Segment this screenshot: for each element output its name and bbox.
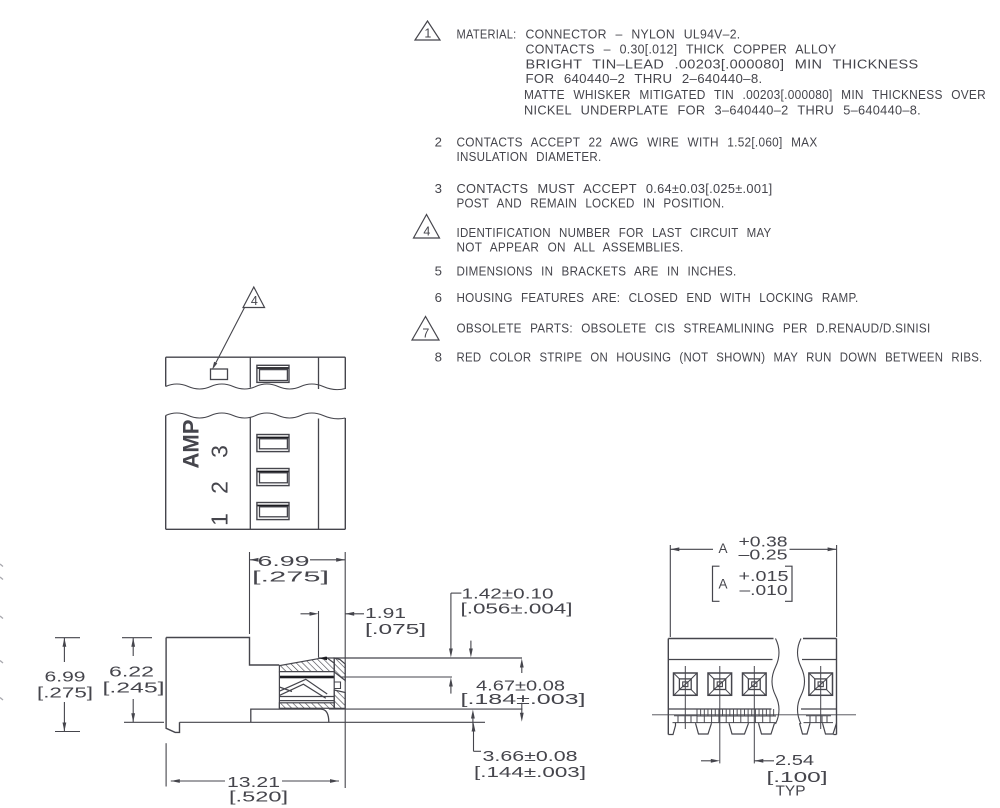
svg-text:[.184±.003]: [.184±.003] <box>461 691 586 708</box>
svg-text:[.144±.003]: [.144±.003] <box>474 764 586 781</box>
svg-text:3.66±0.08: 3.66±0.08 <box>483 748 578 765</box>
svg-text:6.99: 6.99 <box>45 669 86 686</box>
svg-text:OBSOLETE PARTS: OBSOLETE CIS S: OBSOLETE PARTS: OBSOLETE CIS STREAMLININ… <box>457 321 931 336</box>
svg-text:DIMENSIONS IN BRACKETS ARE IN: DIMENSIONS IN BRACKETS ARE IN INCHES. <box>457 263 737 278</box>
svg-text:CONNECTOR – NYLON UL94V–2.: CONNECTOR – NYLON UL94V–2. <box>526 27 741 42</box>
svg-text:CONTACTS MUST ACCEPT 0.64±0.03: CONTACTS MUST ACCEPT 0.64±0.03[.025±.001… <box>457 181 773 196</box>
svg-text:NOT APPEAR ON ALL ASSEMBLIES.: NOT APPEAR ON ALL ASSEMBLIES. <box>457 240 684 255</box>
svg-text:3: 3 <box>435 181 443 196</box>
svg-text:6: 6 <box>435 290 443 305</box>
svg-text:AMP: AMP <box>179 420 204 469</box>
svg-text:RED COLOR STRIPE ON HOUSING (N: RED COLOR STRIPE ON HOUSING (NOT SHOWN) … <box>457 350 983 365</box>
svg-text:6.22: 6.22 <box>109 663 154 680</box>
svg-text:1.91: 1.91 <box>365 605 406 622</box>
svg-text:[.520]: [.520] <box>229 789 288 806</box>
svg-text:6.99: 6.99 <box>258 553 310 570</box>
svg-text:2.54: 2.54 <box>775 752 814 769</box>
svg-text:INSULATION DIAMETER.: INSULATION DIAMETER. <box>457 149 602 164</box>
svg-text:FOR 640440–2 THRU 2–640440–8.: FOR 640440–2 THRU 2–640440–8. <box>526 71 763 86</box>
svg-text:[.275]: [.275] <box>252 569 329 586</box>
svg-text:8: 8 <box>435 350 443 365</box>
svg-text:NICKEL UNDERPLATE FOR 3–640440: NICKEL UNDERPLATE FOR 3–640440–2 THRU 5–… <box>524 103 921 118</box>
svg-text:MATERIAL:: MATERIAL: <box>457 27 517 42</box>
svg-text:2: 2 <box>207 481 233 494</box>
svg-text:A: A <box>718 541 727 556</box>
svg-text:IDENTIFICATION NUMBER FOR LAST: IDENTIFICATION NUMBER FOR LAST CIRCUIT M… <box>457 225 772 240</box>
svg-text:5: 5 <box>435 263 443 278</box>
svg-text:TYP: TYP <box>776 783 806 800</box>
svg-text:–.010: –.010 <box>740 582 788 599</box>
svg-text:MATTE WHISKER MITIGATED TIN .0: MATTE WHISKER MITIGATED TIN .00203[.0000… <box>524 87 986 102</box>
svg-text:CONTACTS – 0.30[.012] THICK CO: CONTACTS – 0.30[.012] THICK COPPER ALLOY <box>526 42 837 57</box>
svg-text:2: 2 <box>435 134 443 149</box>
svg-text:–0.25: –0.25 <box>739 547 788 564</box>
svg-text:7: 7 <box>422 327 429 341</box>
svg-text:4: 4 <box>251 294 258 308</box>
svg-text:POST AND REMAIN LOCKED IN POSI: POST AND REMAIN LOCKED IN POSITION. <box>457 196 725 211</box>
svg-text:1: 1 <box>207 513 233 526</box>
svg-text:CONTACTS ACCEPT 22 AWG WIRE WI: CONTACTS ACCEPT 22 AWG WIRE WITH 1.52[.0… <box>457 134 818 149</box>
svg-text:[.056±.004]: [.056±.004] <box>461 600 573 617</box>
svg-text:HOUSING FEATURES ARE: CLOSED E: HOUSING FEATURES ARE: CLOSED END WITH LO… <box>457 290 859 305</box>
svg-text:A: A <box>718 576 727 591</box>
svg-text:BRIGHT TIN–LEAD .00203[.000080: BRIGHT TIN–LEAD .00203[.000080] MIN THIC… <box>526 56 919 71</box>
svg-text:4: 4 <box>423 225 430 239</box>
svg-text:[.245]: [.245] <box>103 679 165 696</box>
svg-text:[.075]: [.075] <box>365 621 426 638</box>
svg-text:3: 3 <box>207 445 233 458</box>
svg-text:[.275]: [.275] <box>37 685 93 702</box>
svg-text:1: 1 <box>424 27 431 41</box>
